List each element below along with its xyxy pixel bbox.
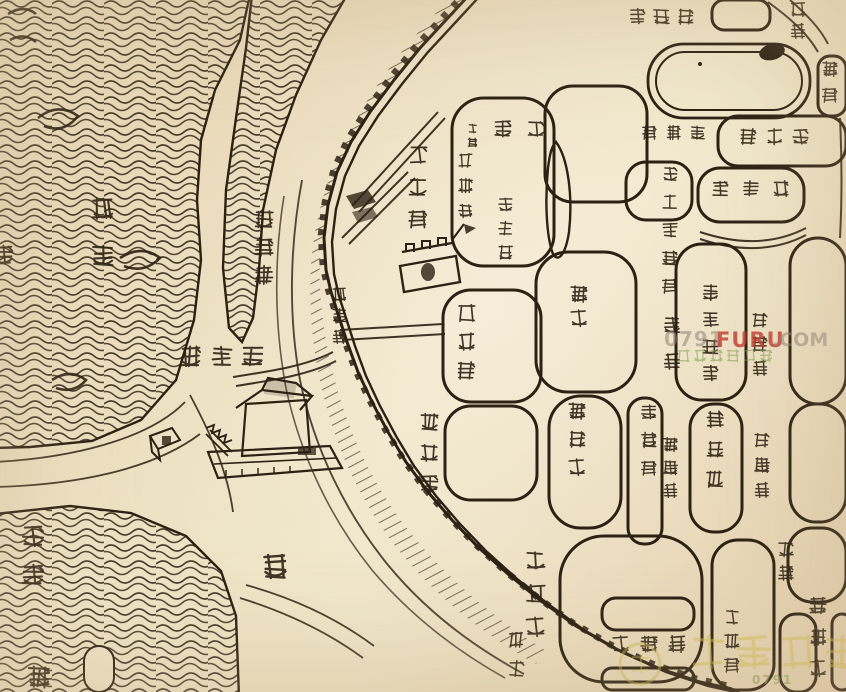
label-pujicang xyxy=(459,154,472,218)
city-block xyxy=(626,162,692,220)
label-gaoqiao xyxy=(779,543,793,581)
city-block xyxy=(718,116,846,166)
label-hetongxiang xyxy=(725,611,739,673)
city-block xyxy=(790,238,846,404)
label-biaojiaxiang xyxy=(643,126,704,140)
label-tengwangge xyxy=(182,347,263,367)
label-xidajie xyxy=(569,403,585,475)
city-block xyxy=(628,398,662,544)
watermark-bottom-small: 0791 xyxy=(752,673,793,687)
watermark-emblem-glyph xyxy=(633,655,648,673)
label-xinjianxian xyxy=(741,129,808,145)
label-cuihuajie xyxy=(810,598,826,677)
city-block xyxy=(602,598,694,630)
gate-tower-sketch xyxy=(346,190,476,292)
label-zongmaoxiang xyxy=(409,147,426,228)
street-island-leaf xyxy=(546,142,570,258)
city-block xyxy=(712,540,774,690)
city-block xyxy=(712,0,770,30)
label-xixiang-partial xyxy=(823,62,837,102)
label-jiefeng xyxy=(495,121,543,137)
city-block xyxy=(788,528,846,602)
label-heyi xyxy=(468,125,476,147)
label-guguxiang xyxy=(642,405,656,475)
map-art: 0791 FURU .COM 0791 xyxy=(0,0,846,692)
riverbank-hatch xyxy=(310,0,545,664)
label-xiyuanmen xyxy=(664,438,677,498)
tengwang-pavilion-sketch xyxy=(206,378,342,478)
historical-map-canvas: 0791 FURU .COM 0791 xyxy=(0,0,846,692)
label-nanchangxian xyxy=(459,305,475,379)
label-xijie xyxy=(571,286,587,326)
watermark-suffix: .COM xyxy=(772,329,828,351)
watermark-emblem-char xyxy=(633,655,648,673)
label-dabeiyuan xyxy=(631,9,693,24)
city-block xyxy=(690,404,742,532)
city-block xyxy=(445,406,537,500)
river-zone-upper xyxy=(0,0,250,448)
city-block xyxy=(549,396,621,528)
label-xuepujting xyxy=(713,181,788,197)
label-dongyuanmen xyxy=(755,434,769,498)
city-block xyxy=(560,536,702,682)
label-hao-moat xyxy=(264,555,285,578)
label-zongzhenfu xyxy=(707,411,723,487)
city-block xyxy=(818,56,846,116)
label-buzhengsi xyxy=(499,198,512,259)
city-block xyxy=(443,290,541,402)
xinzhou-island xyxy=(0,506,239,692)
city-block xyxy=(790,404,846,522)
city-block xyxy=(545,86,647,202)
watermark-prefix: 0791 xyxy=(664,327,724,351)
pond xyxy=(648,41,810,118)
island-clearing xyxy=(84,646,114,692)
